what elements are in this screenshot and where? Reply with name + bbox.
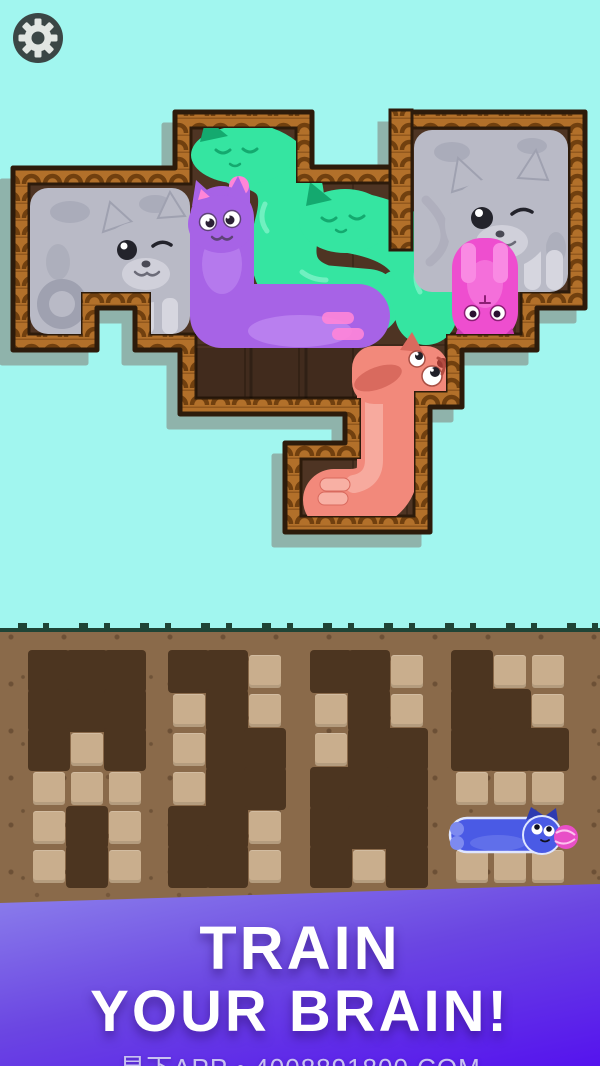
banner-subtext: 易下APP • 4008891800.COM (119, 1048, 481, 1066)
pattern-hole-cell (66, 650, 108, 693)
banner-title-line2: YOUR BRAIN! (90, 983, 510, 1041)
pattern-hole-cell (386, 728, 428, 771)
yarn-ball-icon (554, 825, 578, 849)
pattern-hole-cell (310, 650, 352, 693)
pattern-tile-cell (249, 850, 281, 883)
settings-button[interactable] (12, 12, 64, 64)
board-inner-wall (390, 110, 412, 250)
panel-2 (170, 652, 284, 886)
panel-3 (312, 652, 426, 886)
pattern-hole-cell (28, 728, 70, 771)
pattern-hole-cell (348, 806, 390, 849)
pattern-tile-cell (33, 850, 65, 883)
pattern-tile-cell (173, 733, 205, 766)
pattern-hole-cell (386, 806, 428, 849)
pattern-tile-cell (494, 655, 526, 688)
banner-title-line1: TRAIN (199, 918, 400, 979)
pattern-hole-cell (104, 728, 146, 771)
pattern-hole-cell (527, 728, 569, 771)
pattern-hole-cell (310, 845, 352, 888)
pattern-hole-cell (348, 689, 390, 732)
pattern-hole-cell (386, 845, 428, 888)
promo-banner: TRAIN YOUR BRAIN! 易下APP • 4008891800.COM (0, 884, 600, 1066)
pattern-tile-cell (249, 811, 281, 844)
pattern-hole-cell (348, 728, 390, 771)
pattern-hole-cell (104, 689, 146, 732)
pattern-hole-cell (206, 845, 248, 888)
puzzle-board (0, 0, 600, 600)
pattern-hole-cell (310, 806, 352, 849)
pattern-hole-cell (168, 845, 210, 888)
pattern-tile-cell (109, 772, 141, 805)
pattern-tile-cell (249, 694, 281, 727)
pattern-tile-cell (532, 772, 564, 805)
pattern-tile-cell (173, 772, 205, 805)
blue-cat-piece[interactable] (446, 806, 580, 860)
pattern-tile-cell (315, 694, 347, 727)
pattern-hole-cell (66, 845, 108, 888)
pattern-hole-cell (348, 650, 390, 693)
pattern-hole-cell (489, 689, 531, 732)
pattern-tile-cell (353, 850, 385, 883)
pattern-tile-cell (173, 694, 205, 727)
pattern-tile-cell (71, 733, 103, 766)
pattern-hole-cell (451, 728, 493, 771)
pattern-hole-cell (104, 650, 146, 693)
pattern-tile-cell (33, 811, 65, 844)
pattern-hole-cell (451, 650, 493, 693)
pattern-hole-cell (244, 767, 286, 810)
pattern-hole-cell (386, 767, 428, 810)
pattern-hole-cell (28, 650, 70, 693)
pattern-tile-cell (249, 655, 281, 688)
pattern-hole-cell (168, 650, 210, 693)
pattern-tile-cell (109, 811, 141, 844)
pattern-tile-cell (391, 694, 423, 727)
pattern-hole-cell (66, 689, 108, 732)
app-root: TRAIN YOUR BRAIN! 易下APP • 4008891800.COM (0, 0, 600, 1066)
gear-icon (12, 12, 64, 64)
pattern-tile-cell (33, 772, 65, 805)
pink-cat-piece[interactable] (452, 238, 518, 344)
pattern-hole-cell (489, 728, 531, 771)
gray-cat-piece-left[interactable] (30, 188, 190, 334)
pattern-hole-cell (451, 689, 493, 732)
pattern-hole-cell (206, 767, 248, 810)
pattern-tile-cell (532, 694, 564, 727)
panel-1 (30, 652, 144, 886)
pattern-hole-cell (348, 767, 390, 810)
pattern-hole-cell (206, 689, 248, 732)
pattern-tile-cell (494, 772, 526, 805)
pattern-hole-cell (206, 650, 248, 693)
pattern-hole-cell (168, 806, 210, 849)
pattern-tile-cell (109, 850, 141, 883)
pattern-tile-cell (315, 733, 347, 766)
grass-edge (0, 628, 600, 632)
pattern-hole-cell (206, 806, 248, 849)
pattern-hole-cell (244, 728, 286, 771)
pattern-hole-cell (310, 767, 352, 810)
pattern-tile-cell (532, 655, 564, 688)
pattern-hole-cell (206, 728, 248, 771)
empty-cells (196, 348, 361, 398)
pattern-tile-cell (391, 655, 423, 688)
pattern-tile-cell (71, 772, 103, 805)
pattern-hole-cell (66, 806, 108, 849)
pattern-hole-cell (28, 689, 70, 732)
pattern-tile-cell (456, 772, 488, 805)
